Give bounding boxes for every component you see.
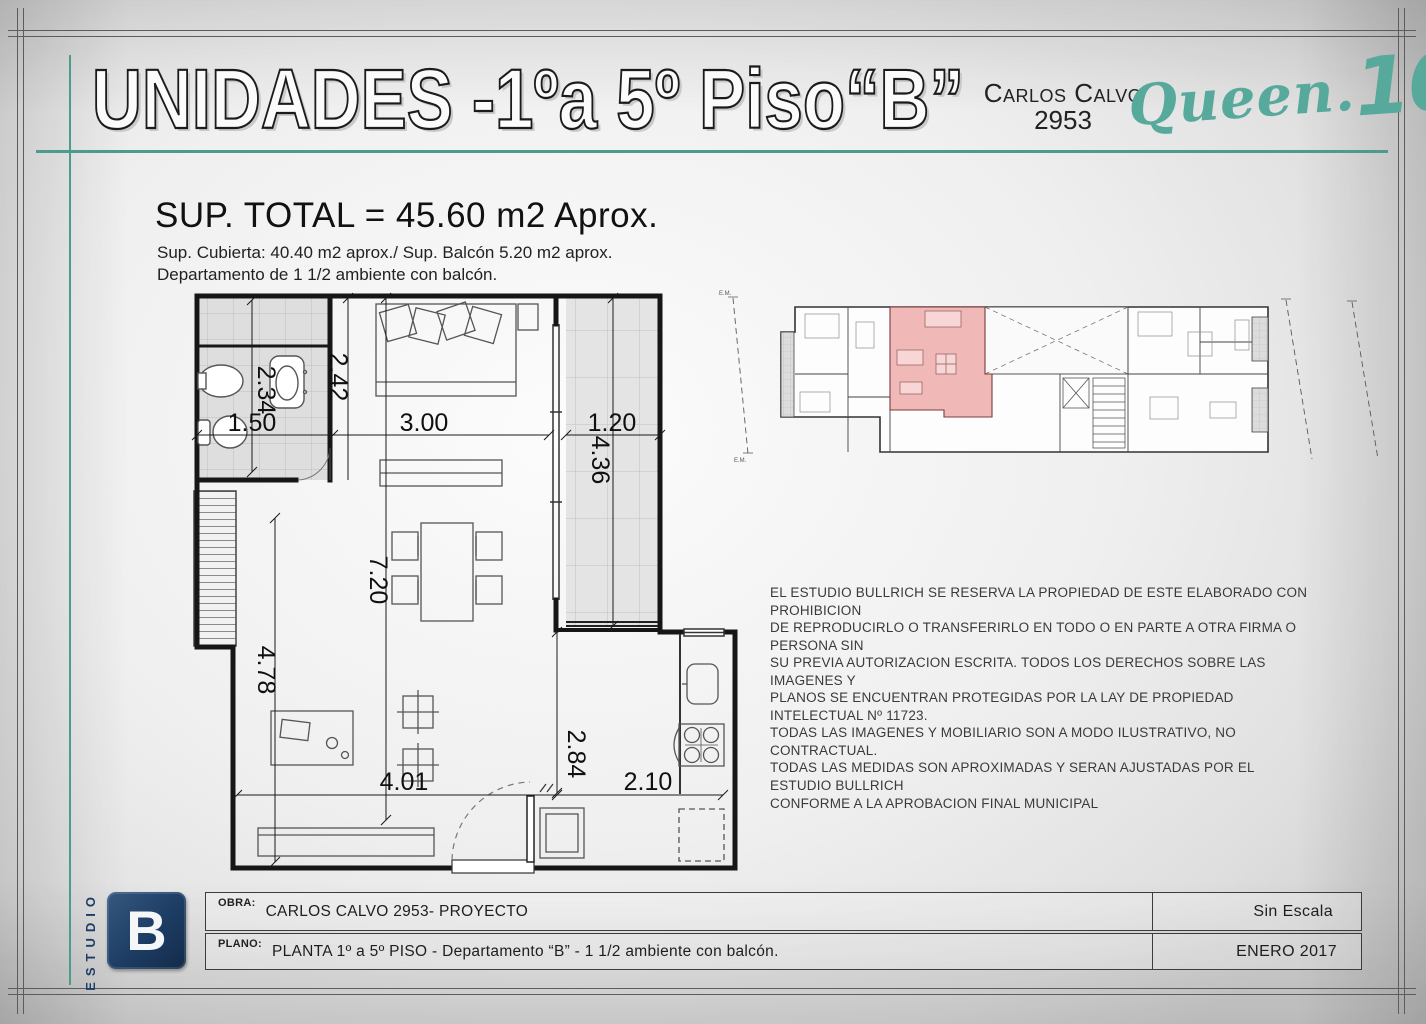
unit-b-highlight bbox=[890, 307, 992, 417]
frame-line bbox=[8, 30, 1416, 31]
accent-vertical-rule bbox=[69, 55, 71, 985]
total-surface: SUP. TOTAL = 45.60 m2 Aprox. bbox=[155, 196, 658, 236]
door-leaf bbox=[527, 796, 534, 862]
courtyard bbox=[985, 307, 1128, 374]
dim-balcony-height: 4.36 bbox=[586, 436, 614, 485]
surface-summary: SUP. TOTAL = 45.60 m2 Aprox. Sup. Cubier… bbox=[155, 196, 658, 287]
pillows bbox=[379, 302, 501, 344]
frame-line bbox=[8, 994, 1416, 995]
frame-line bbox=[1404, 8, 1405, 1014]
dim-bed-width: 3.00 bbox=[400, 409, 449, 437]
titleblock-date-cell: ENERO 2017 bbox=[1152, 933, 1362, 970]
accent-horizontal-rule bbox=[36, 150, 1388, 153]
address-number: 2953 bbox=[978, 107, 1148, 134]
dim-living-width: 4.01 bbox=[380, 768, 429, 796]
left-balcony bbox=[781, 332, 794, 417]
frame-line bbox=[17, 8, 18, 1014]
brand-number: 10 bbox=[1352, 34, 1426, 134]
door-swing-arc bbox=[452, 782, 530, 860]
frame-line bbox=[23, 8, 24, 1014]
dining-set bbox=[392, 523, 502, 621]
dining-table bbox=[421, 523, 473, 621]
axis-marker: E.M. bbox=[719, 291, 732, 297]
frame-line bbox=[8, 36, 1416, 37]
frame-line bbox=[8, 988, 1416, 989]
side-shaft-hatch bbox=[194, 491, 236, 646]
dim-living-height: 7.20 bbox=[364, 556, 392, 605]
sofa bbox=[258, 828, 434, 856]
kitchen bbox=[674, 634, 724, 861]
legal-disclaimer: EL ESTUDIO BULLRICH SE RESERVA LA PROPIE… bbox=[770, 584, 1310, 812]
frame-line bbox=[1398, 8, 1399, 1014]
dim-bath-height: 2.34 bbox=[252, 366, 280, 415]
project-address: Carlos Calvo 2953 bbox=[978, 80, 1148, 135]
studio-logo-letter: B bbox=[126, 903, 166, 959]
date-value: ENERO 2017 bbox=[1236, 943, 1337, 961]
plano-label: PLANO: bbox=[218, 938, 262, 950]
dim-balcony-width: 1.20 bbox=[588, 409, 637, 437]
main-floorplan: 1.50 3.00 1.20 2.34 2.42 7.20 4.78 4.36 … bbox=[185, 282, 750, 882]
bedroom-furniture bbox=[376, 302, 538, 486]
address-name: Carlos Calvo bbox=[978, 80, 1148, 107]
scale-value: Sin Escala bbox=[1253, 903, 1333, 921]
studio-vertical-text: ESTUDIO bbox=[83, 891, 98, 991]
plan-sheet: { "page": { "title": "UNIDADES -1ºa 5º P… bbox=[0, 0, 1426, 1024]
entry-door bbox=[452, 782, 553, 873]
obra-value: CARLOS CALVO 2953- PROYECTO bbox=[266, 903, 529, 921]
titleblock-scale-cell: Sin Escala bbox=[1152, 892, 1362, 931]
titleblock-obra-row: OBRA: CARLOS CALVO 2953- PROYECTO bbox=[205, 892, 1153, 931]
right-balcony bbox=[1252, 317, 1268, 361]
studio-vertical-label: ESTUDIO bbox=[83, 891, 101, 969]
dim-lower-left-height: 4.78 bbox=[252, 646, 280, 695]
stove-handle bbox=[674, 728, 679, 762]
obra-label: OBRA: bbox=[218, 897, 256, 909]
brand-logo: Queen.10 bbox=[1125, 39, 1401, 151]
dim-bed-left: 2.42 bbox=[324, 353, 352, 402]
brand-script-text: Queen. bbox=[1126, 58, 1357, 140]
fridge-dashed bbox=[679, 809, 724, 861]
plano-value: PLANTA 1º a 5º PISO - Departamento “B” -… bbox=[272, 943, 779, 961]
building-footprint bbox=[781, 307, 1268, 452]
studio-logo: B bbox=[107, 892, 186, 969]
page-title-block: UNIDADES -1ºa 5º Piso“B” UNIDADES -1ºa 5… bbox=[90, 56, 990, 148]
surface-detail: Sup. Cubierta: 40.40 m2 aprox./ Sup. Bal… bbox=[157, 243, 613, 262]
right-balcony bbox=[1252, 388, 1268, 432]
axis-marker: E.M. bbox=[734, 458, 747, 464]
nightstand bbox=[518, 304, 538, 330]
titleblock-plano-row: PLANO: PLANTA 1º a 5º PISO - Departament… bbox=[205, 933, 1153, 970]
kitchen-sink bbox=[687, 664, 718, 704]
dim-kitchen-height: 2.84 bbox=[562, 730, 590, 779]
dim-kitchen-width: 2.10 bbox=[624, 768, 673, 796]
key-plan: E.M. E.M. bbox=[715, 282, 1426, 467]
laptop bbox=[280, 719, 310, 740]
entry-threshold bbox=[452, 860, 534, 873]
page-title: UNIDADES -1ºa 5º Piso“B” bbox=[92, 56, 964, 146]
